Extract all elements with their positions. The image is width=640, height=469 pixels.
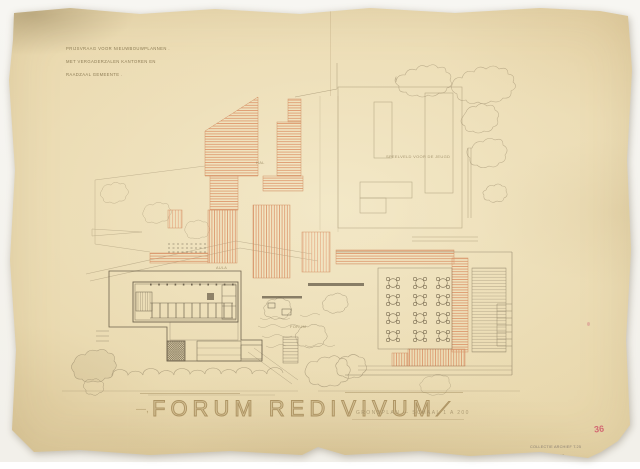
tree-outline (467, 138, 507, 167)
drawing-title-text: FORUM REDIVIVUM (152, 396, 436, 421)
title-rule-left (140, 393, 240, 394)
platform (170, 322, 238, 340)
stamp-line-3: BLAD 7 PLAN (530, 464, 556, 468)
deck-lines (197, 348, 241, 355)
court-steps (283, 337, 298, 363)
forum-courtyard (248, 283, 364, 384)
roof-small (168, 210, 182, 228)
building-outline (109, 271, 262, 361)
playing-field (295, 63, 478, 241)
core-block (207, 293, 214, 300)
terrace-roof-right (452, 258, 468, 352)
roof-strip (210, 176, 238, 210)
plot-footpath (92, 229, 142, 236)
title-rule-right (345, 392, 463, 393)
tree-outline (322, 293, 348, 313)
tree-outline (483, 184, 507, 202)
aula-label: AULA (216, 266, 227, 270)
seat-rows (168, 244, 206, 252)
field-walkway-lines (320, 96, 338, 232)
outside-steps (96, 331, 109, 341)
plot-outline (95, 166, 205, 252)
field-inner-court-tall (425, 93, 453, 193)
roof-strip-left (150, 253, 208, 263)
terrace-roof-step (392, 353, 408, 366)
scanner-bed: PRIJSVRAAG VOOR NIEUWBOUWPLANNEN . MET V… (0, 0, 640, 462)
archive-stamp: COLLECTIE ARCHIEF T.25 MAP FORUM A 62 BL… (530, 440, 581, 469)
tree-cluster-bottom-left (72, 349, 117, 382)
field-step-a (360, 182, 412, 198)
tree-outline (264, 298, 292, 320)
field-label: SPEELVELD VOOR DE JEUGD (386, 154, 450, 159)
bench-bar (262, 296, 302, 299)
annotation-line-2: MET VERGADERZALEN KANTOREN EN (66, 59, 156, 64)
dark-hatched-court (167, 341, 185, 361)
roof-block-light (302, 232, 330, 272)
terrace-tables (386, 277, 449, 341)
drawing-sheet: PRIJSVRAAG VOOR NIEUWBOUWPLANNEN . MET V… (0, 0, 640, 462)
field-path-lines (412, 148, 478, 241)
tree-outline (185, 220, 210, 239)
roof-hatch-group (150, 97, 468, 366)
annotation-line-1: PRIJSVRAAG VOOR NIEUWBOUWPLANNEN . (66, 46, 170, 51)
hall-label: HAL (256, 160, 265, 165)
paper-shadow-wrap: PRIJSVRAAG VOOR NIEUWBOUWPLANNEN . MET V… (0, 0, 640, 462)
tree-outline (395, 65, 451, 97)
drawing-title: FORUM REDIVIVUM⟋ (152, 396, 450, 422)
stamp-line-1: COLLECTIE ARCHIEF T.25 (530, 445, 581, 449)
planter (268, 303, 275, 308)
roof-band (263, 176, 303, 191)
stair-block (136, 292, 152, 311)
bench-bar (308, 283, 364, 286)
tree-outline (100, 182, 128, 203)
planter (282, 309, 291, 315)
annotation-line-3: RAADZAAL GEMEENTE . (66, 72, 123, 77)
field-step-b (360, 198, 386, 213)
roof-strip (277, 122, 301, 176)
red-inventory-number: 36 (594, 424, 605, 435)
field-inner-court-small (374, 102, 392, 158)
terrace-roof-bottom (408, 349, 465, 366)
paper-crease (330, 6, 331, 96)
bottom-double-wall (358, 366, 512, 370)
tree-outline (143, 202, 172, 223)
colonnade-columns (152, 303, 232, 318)
roof-strip-slanted (205, 97, 258, 176)
colonnade-rails (150, 303, 233, 318)
stamp-line-2: MAP FORUM A 62 (530, 454, 564, 458)
tree-outline (452, 66, 516, 104)
title-prefix: —, (136, 404, 149, 415)
project-annotation: PRIJSVRAAG VOOR NIEUWBOUWPLANNEN . MET V… (66, 40, 196, 78)
roof-block (208, 210, 237, 263)
drawing-subtitle: GRONDPLAN — SCHAAL 1 A 200 (356, 410, 470, 416)
forum-label: FORUM (290, 324, 306, 329)
tree-cluster-bottom-center (305, 355, 367, 387)
pink-speck (587, 322, 590, 326)
tree-outline (461, 104, 499, 133)
roof-strip (288, 99, 301, 122)
roof-block-central (253, 205, 290, 278)
tree-cluster-top-right (395, 65, 516, 203)
pergola (472, 268, 506, 352)
shrub-row (112, 367, 283, 376)
deck (197, 341, 241, 361)
annex (241, 345, 262, 359)
